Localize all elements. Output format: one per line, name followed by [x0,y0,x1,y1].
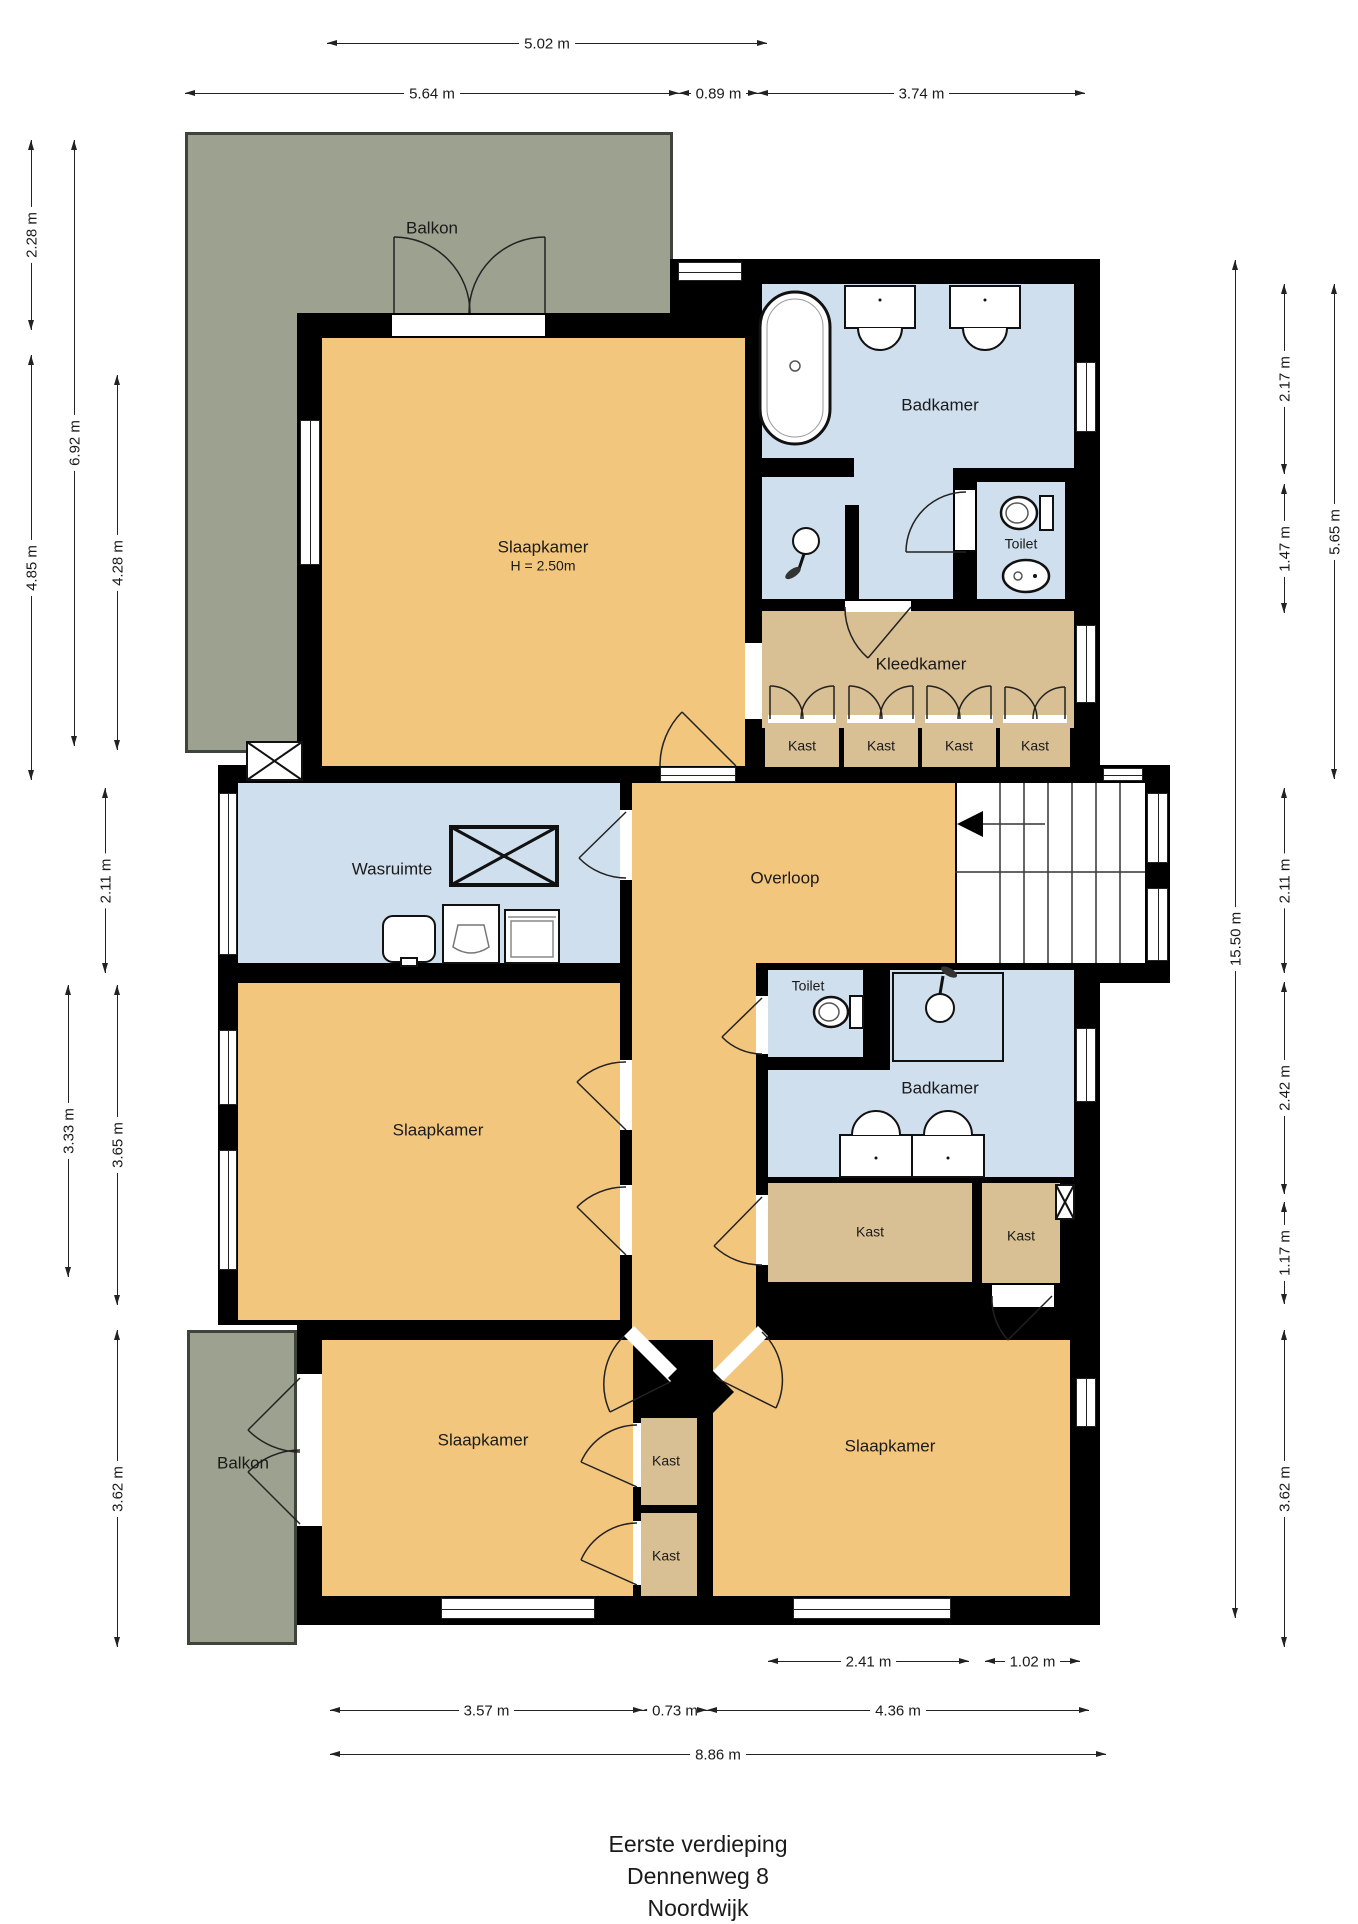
room-label-kleedkamer: Kleedkamer [876,653,967,674]
stairs-direction-arrow [957,811,983,837]
door-arc [714,1197,762,1265]
dimension-line: 15.50 m [1235,260,1236,1618]
sink-icon [845,286,915,350]
room-label-kast-mid-left: Kast [856,1223,884,1241]
door-arc [579,812,626,878]
toilet-icon [1001,496,1053,530]
plan-symbols [0,0,1358,1920]
door-arc [581,1425,637,1585]
dimension-line: 1.17 m [1284,1202,1285,1304]
room-label-balkon-top: Balkon [406,217,458,238]
balcony-double-door [394,237,545,313]
room-label-kast: Kast [945,737,973,755]
dimension-line: 3.65 m [117,985,118,1305]
dimension-line: 1.47 m [1284,484,1285,613]
room-label-kast-bottom-2: Kast [652,1547,680,1565]
dimension-line: 2.41 m [768,1661,969,1662]
room-label-balkon-bottom: Balkon [217,1452,269,1473]
shower-icon [893,964,1003,1061]
dimension-line: 3.62 m [1284,1330,1285,1647]
door-arc [992,1296,1052,1340]
room-label-slaapkamer-top: Slaapkamer H = 2.50m [498,537,589,576]
room-label-slaapkamer-bottom-right: Slaapkamer [845,1435,936,1456]
floor-plan: Balkon Slaapkamer H = 2.50m Badkamer Toi… [0,0,1358,1920]
stairs-steps [955,783,1145,963]
room-label-slaapkamer-bottom-left: Slaapkamer [438,1429,529,1450]
dimension-line: 5.64 m [185,93,679,94]
dimension-line: 3.62 m [117,1330,118,1647]
door-arc [577,1062,626,1255]
room-label-kast: Kast [788,737,816,755]
dimension-line: 2.11 m [1284,788,1285,973]
dimension-line: 6.92 m [74,140,75,746]
room-label-kast-bottom-1: Kast [652,1452,680,1470]
sink-icon [840,1111,912,1177]
toilet-icon [814,996,863,1028]
dimension-line: 8.86 m [330,1754,1106,1755]
dimension-line: 5.65 m [1334,284,1335,779]
shaft-cross-icon [1056,1185,1074,1219]
door-arc [722,998,762,1054]
room-label-slaapkamer-left: Slaapkamer [393,1119,484,1140]
dimension-line: 2.42 m [1284,982,1285,1194]
room-label-badkamer-top: Badkamer [901,394,978,415]
washing-machine-icon [505,910,559,963]
room-label-kast: Kast [867,737,895,755]
door-arc [845,607,911,658]
plan-title: Eerste verdieping Dennenweg 8 Noordwijk [478,1828,918,1924]
room-label-kast-mid-right: Kast [1007,1227,1035,1245]
room-label-toilet-top: Toilet [1005,535,1038,553]
room-label-wasruimte: Wasruimte [352,858,433,879]
sink-icon [912,1111,984,1177]
dimension-line: 2.11 m [105,788,106,973]
title-floor: Eerste verdieping [478,1828,918,1860]
dimension-line: 1.02 m [985,1661,1080,1662]
dimension-line: 3.33 m [68,985,69,1277]
diagonal-door-openings [604,1326,783,1418]
door-arc [906,492,966,552]
sink-icon [383,916,435,966]
room-label-overloop: Overloop [751,867,820,888]
dimension-line: 4.28 m [117,375,118,750]
sink-icon [950,286,1020,350]
closet-double-door [770,686,1065,719]
shower-icon [783,528,819,581]
title-city: Noordwijk [478,1892,918,1924]
room-label-badkamer-mid: Badkamer [901,1077,978,1098]
door-arc [660,712,736,766]
room-label-toilet-mid: Toilet [792,977,825,995]
dimension-line: 4.36 m [707,1710,1089,1711]
bidet-icon [1003,560,1049,592]
dimension-line: 0.73 m [643,1710,707,1711]
washing-machine-icon [443,905,499,963]
dimension-line: 3.74 m [758,93,1085,94]
dimension-line: 4.85 m [31,355,32,780]
dimension-line: 2.28 m [31,140,32,330]
crossed-box-icon [451,827,557,885]
ceiling-height-note: H = 2.50m [498,558,589,576]
dimension-line: 0.89 m [679,93,758,94]
dimension-line: 3.57 m [330,1710,643,1711]
room-label-kast: Kast [1021,737,1049,755]
title-street: Dennenweg 8 [478,1860,918,1892]
bathtub-icon [760,292,830,444]
balcony-double-door [248,1378,300,1524]
shaft-cross-icon [247,742,302,780]
dimension-line: 5.02 m [327,43,767,44]
dimension-line: 2.17 m [1284,284,1285,474]
